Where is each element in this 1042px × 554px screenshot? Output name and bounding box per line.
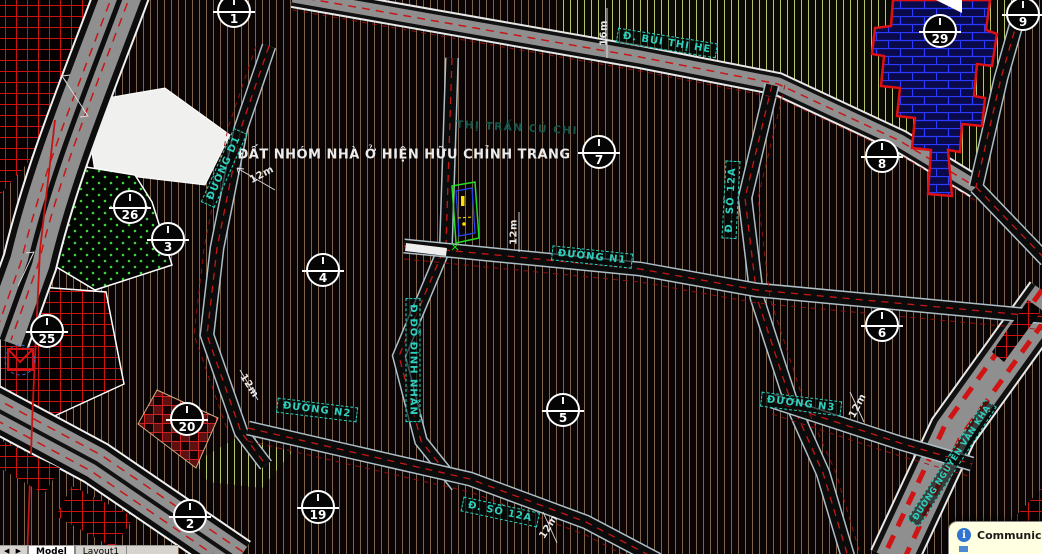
marker-roman: I [188, 503, 192, 513]
marker-roman: I [321, 257, 325, 267]
marker-roman: I [1021, 1, 1025, 11]
marker-number: 19 [310, 509, 327, 521]
tab-prev-icon[interactable]: ◀ [4, 547, 11, 554]
parcel-marker-7: I 7 [582, 135, 616, 169]
marker-number: 1 [230, 13, 238, 25]
marker-roman: I [185, 406, 189, 416]
tab-next-icon[interactable]: ▶ [16, 547, 23, 554]
marker-roman: I [166, 226, 170, 236]
marker-roman: I [45, 318, 49, 328]
marker-number: 6 [878, 327, 886, 339]
marker-roman: I [128, 194, 132, 204]
dimension-16m: 16m [599, 20, 610, 46]
parcel-marker-2: I 2 [173, 499, 207, 533]
notification-title: Communic [977, 529, 1042, 542]
marker-number: 7 [595, 154, 603, 166]
tab-model[interactable]: Model [28, 546, 75, 554]
marker-roman: I [880, 312, 884, 322]
marker-roman: I [880, 143, 884, 153]
parcel-marker-8: I 8 [865, 139, 899, 173]
parcel-marker-3: I 3 [151, 222, 185, 256]
parcel-marker-20: I 20 [170, 402, 204, 436]
marker-number: 26 [122, 209, 139, 221]
parcel-marker-29: I 29 [923, 14, 957, 48]
street-label-do-dinh-nhan: Đ.ĐỖ ĐÌNH NHÂN [406, 298, 421, 422]
dimension-12m-n1: 12m [509, 219, 520, 245]
marker-number: 25 [39, 333, 56, 345]
tab-layout1[interactable]: Layout1 [75, 546, 127, 554]
marker-number: 20 [179, 421, 196, 433]
marker-roman: I [938, 18, 942, 28]
marker-number: 29 [932, 33, 949, 45]
parcel-marker-4: I 4 [306, 253, 340, 287]
parcel-marker-25: I 25 [30, 314, 64, 348]
marker-roman: I [597, 139, 601, 149]
drawing-canvas[interactable] [0, 0, 1042, 554]
map-title: ĐẤT NHÓM NHÀ Ở HIỆN HỮU CHỈNH TRANG [237, 148, 570, 163]
marker-number: 8 [878, 158, 886, 170]
marker-roman: I [232, 0, 236, 8]
parcel-marker-5: I 5 [546, 393, 580, 427]
marker-number: 3 [164, 241, 172, 253]
tab-nav-icons[interactable]: ◀ ▶ [0, 546, 28, 554]
marker-number: 9 [1019, 16, 1027, 28]
cad-viewport[interactable]: THỊ TRẤN CỦ CHI ĐẤT NHÓM NHÀ Ở HIỆN HỮU … [0, 0, 1042, 554]
notification-balloon[interactable]: i Communic [948, 521, 1042, 554]
marker-roman: I [561, 397, 565, 407]
notification-partial-content [959, 546, 968, 552]
info-icon: i [957, 528, 971, 542]
marker-number: 2 [186, 518, 194, 530]
parcel-marker-19: I 19 [301, 490, 335, 524]
marker-roman: I [316, 494, 320, 504]
parcel-marker-6: I 6 [865, 308, 899, 342]
marker-number: 4 [319, 272, 327, 284]
layout-tab-bar: ◀ ▶ Model Layout1 [0, 545, 178, 554]
marker-number: 5 [559, 412, 567, 424]
parcel-marker-26: I 26 [113, 190, 147, 224]
